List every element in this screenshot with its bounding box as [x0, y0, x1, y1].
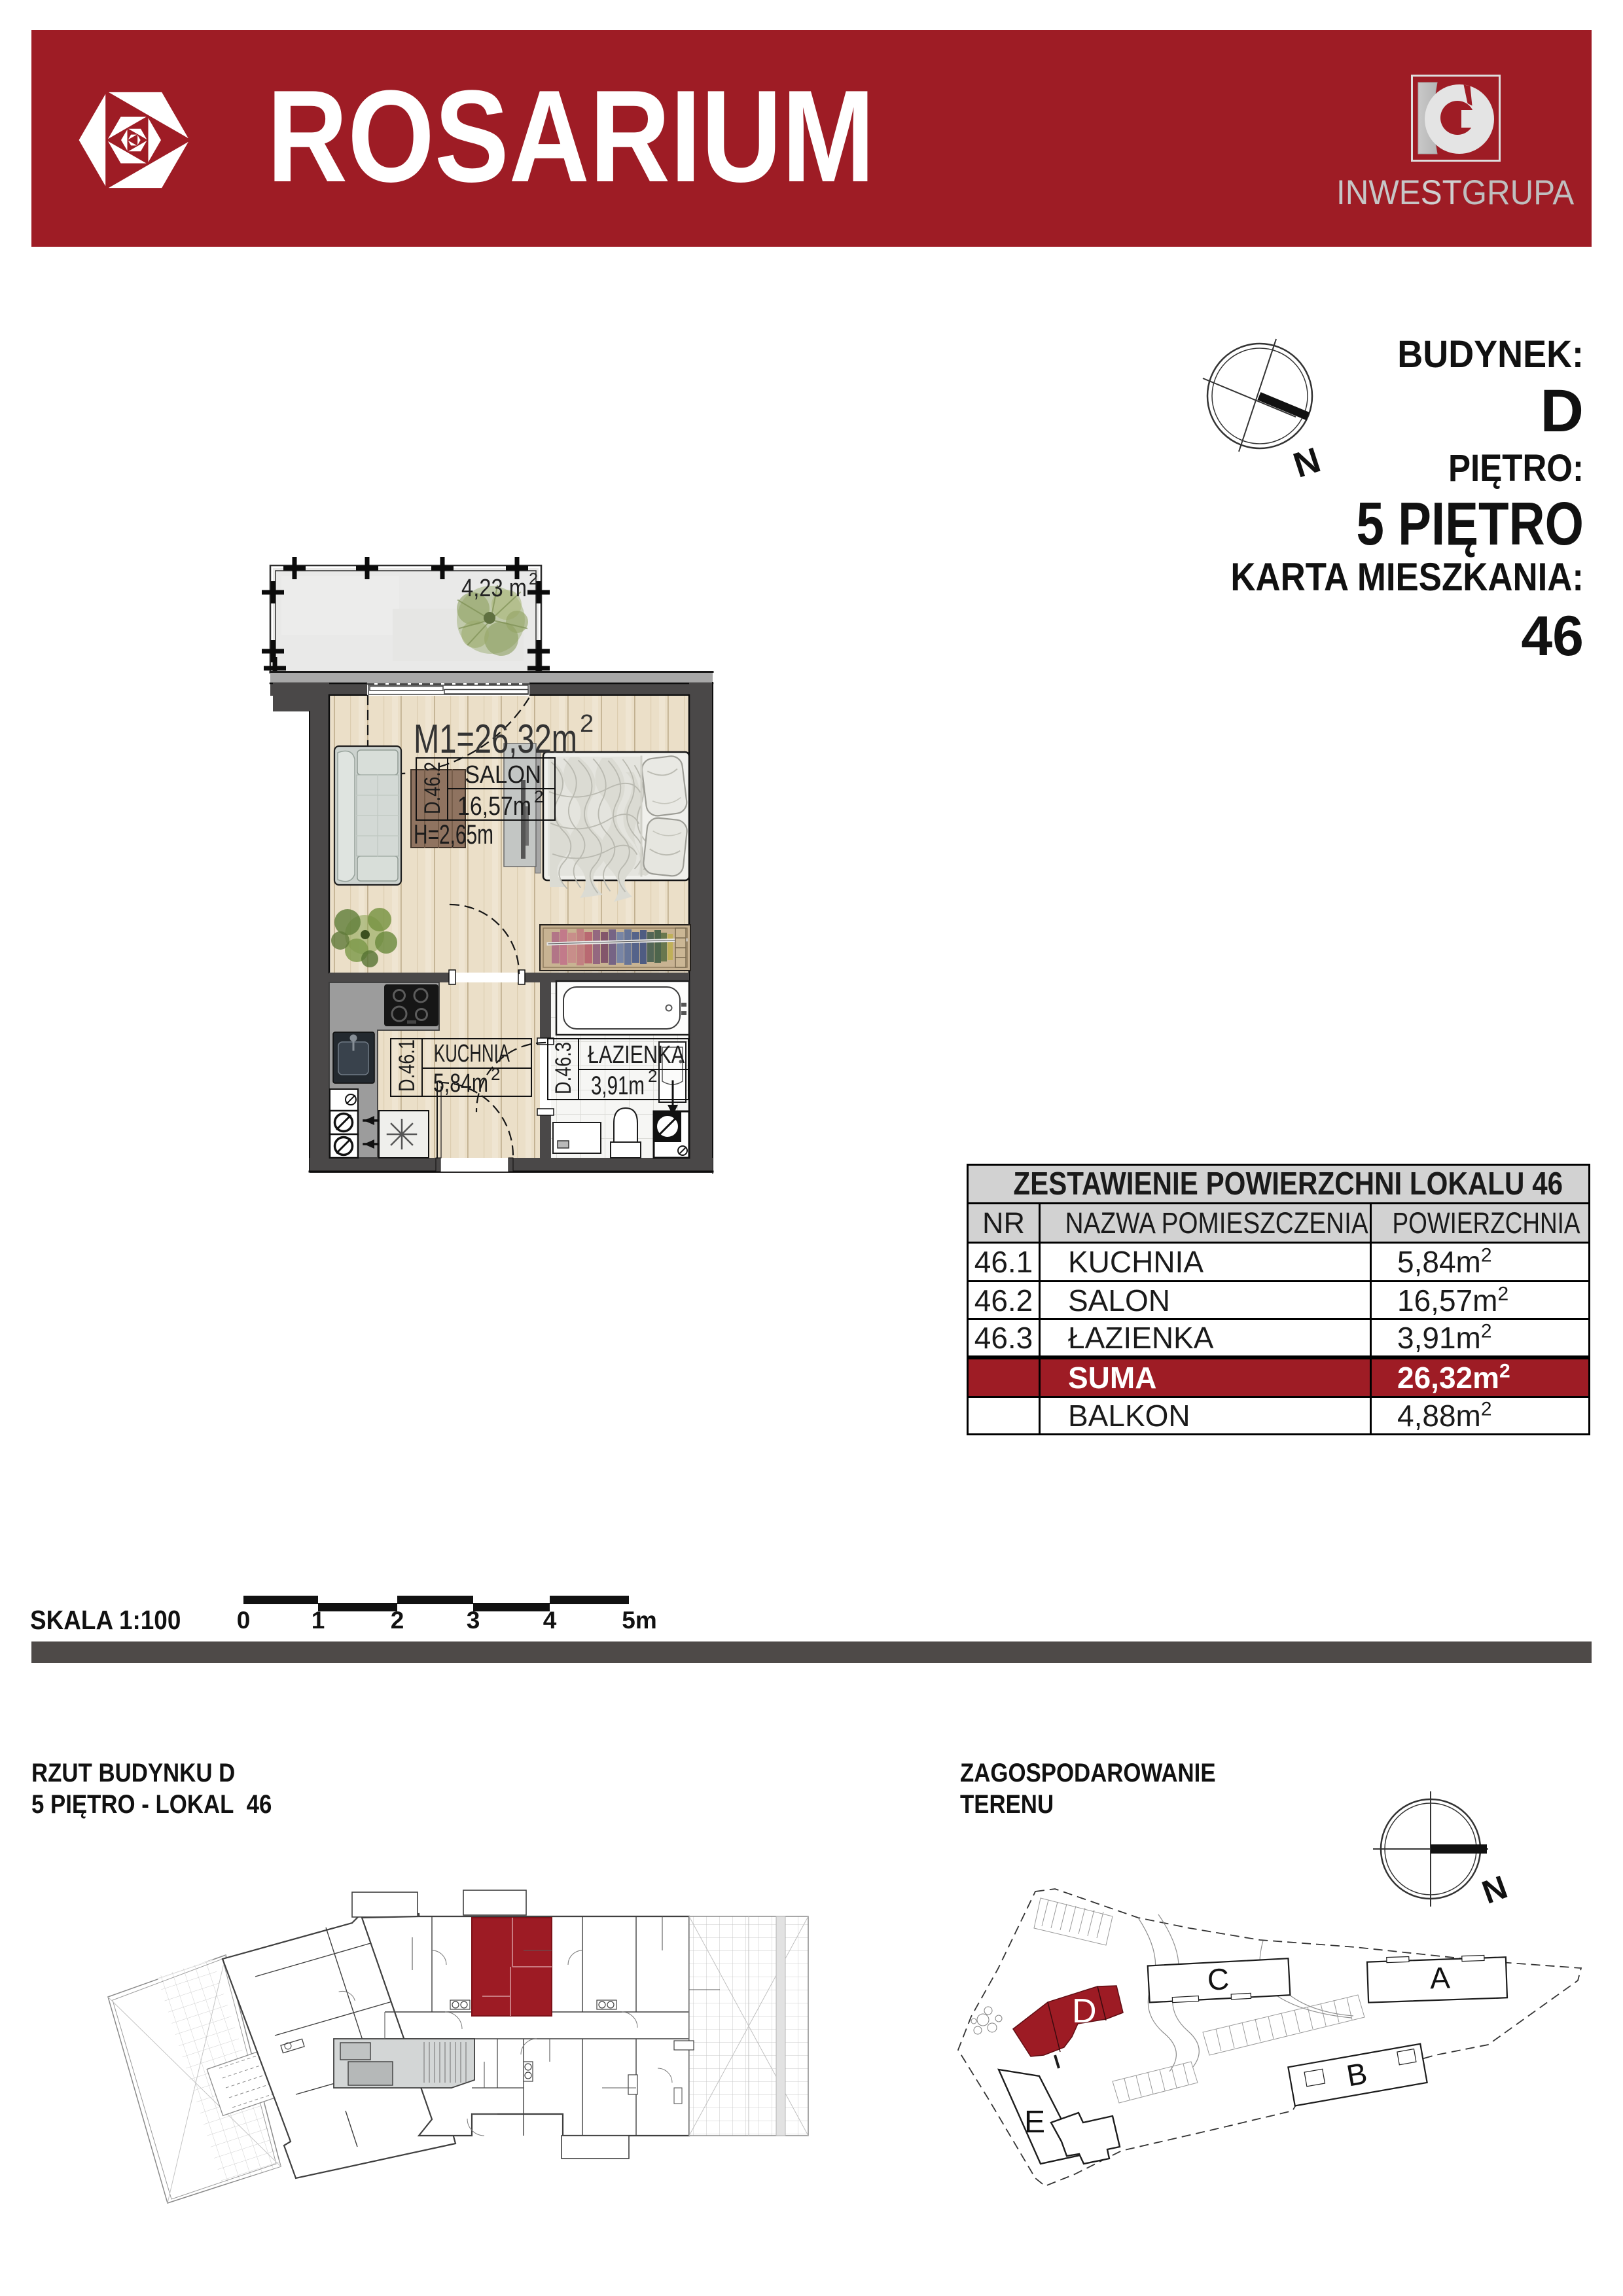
svg-text:D.46.2: D.46.2	[420, 762, 445, 814]
svg-text:3: 3	[467, 1607, 480, 1633]
svg-text:M1=26,32m: M1=26,32m	[414, 717, 577, 762]
svg-text:2: 2	[648, 1066, 657, 1086]
svg-text:5,84m: 5,84m	[433, 1069, 488, 1098]
svg-text:SALON: SALON	[465, 761, 541, 789]
svg-text:0: 0	[237, 1607, 251, 1633]
svg-text:2: 2	[580, 710, 594, 738]
svg-text:KUCHNIA: KUCHNIA	[434, 1040, 510, 1067]
svg-text:C: C	[1207, 1962, 1230, 1997]
svg-text:A: A	[1429, 1960, 1451, 1995]
svg-text:1: 1	[312, 1607, 325, 1633]
svg-text:D.46.1: D.46.1	[395, 1039, 419, 1092]
svg-text:5m: 5m	[622, 1607, 656, 1633]
svg-text:2: 2	[491, 1064, 500, 1084]
svg-text:3,91m: 3,91m	[591, 1071, 645, 1100]
svg-text:2: 2	[529, 570, 538, 588]
svg-text:16,57m: 16,57m	[457, 792, 531, 821]
svg-text:4: 4	[543, 1607, 557, 1633]
svg-text:2: 2	[391, 1607, 404, 1633]
svg-text:4,23 m: 4,23 m	[461, 575, 527, 602]
svg-text:D: D	[1072, 1992, 1097, 2030]
svg-text:H=2,65m: H=2,65m	[414, 819, 493, 850]
svg-text:E: E	[1024, 2105, 1045, 2140]
svg-text:2: 2	[534, 787, 543, 806]
svg-text:D.46.3: D.46.3	[551, 1042, 576, 1094]
svg-text:ŁAZIENKA: ŁAZIENKA	[588, 1041, 685, 1069]
